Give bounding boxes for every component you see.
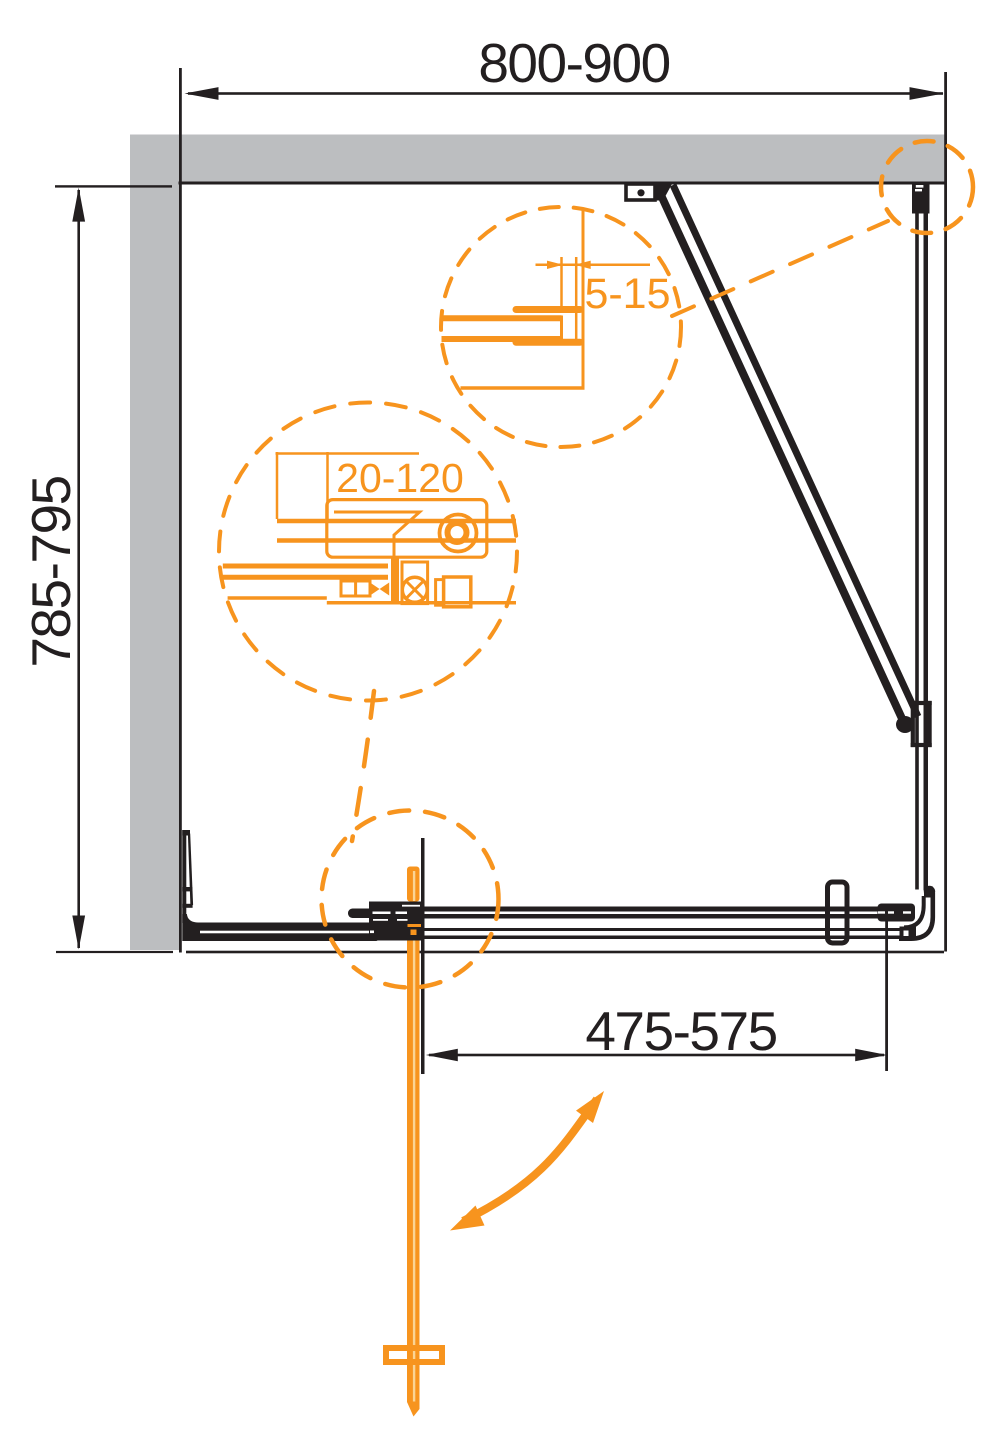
svg-text:800-900: 800-900 — [478, 32, 669, 94]
svg-text:5-15: 5-15 — [584, 270, 670, 318]
svg-text:475-575: 475-575 — [585, 1000, 776, 1062]
svg-text:20-120: 20-120 — [336, 455, 464, 501]
svg-text:785-795: 785-795 — [20, 476, 82, 667]
